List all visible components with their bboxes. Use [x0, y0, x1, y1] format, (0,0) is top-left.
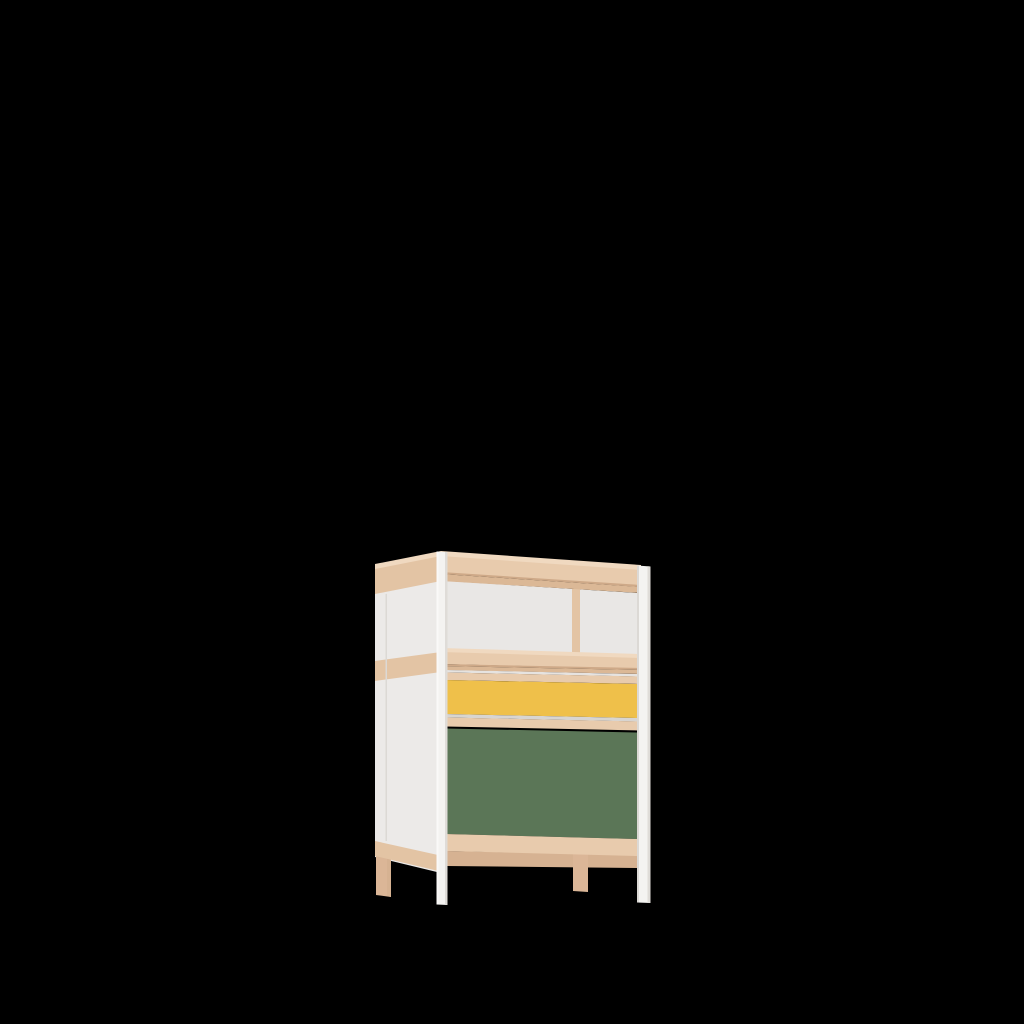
- side-panel: [375, 554, 441, 873]
- back-right-leg: [573, 853, 588, 892]
- front-left-post-highlight: [437, 552, 439, 905]
- green-door-front: [446, 729, 637, 840]
- background: [0, 0, 1024, 1024]
- shelf-divider: [572, 589, 580, 653]
- scene-canvas: [0, 0, 1024, 1024]
- side-post-seam: [386, 594, 388, 841]
- cabinet-render: [0, 0, 1024, 1024]
- front-left-post-shadow: [445, 552, 448, 905]
- open-shelf-back-panel: [447, 581, 637, 656]
- front-right-post-shadow: [648, 566, 651, 903]
- yellow-drawer-front: [446, 680, 637, 718]
- front-right-post-contact-shadow: [637, 566, 639, 903]
